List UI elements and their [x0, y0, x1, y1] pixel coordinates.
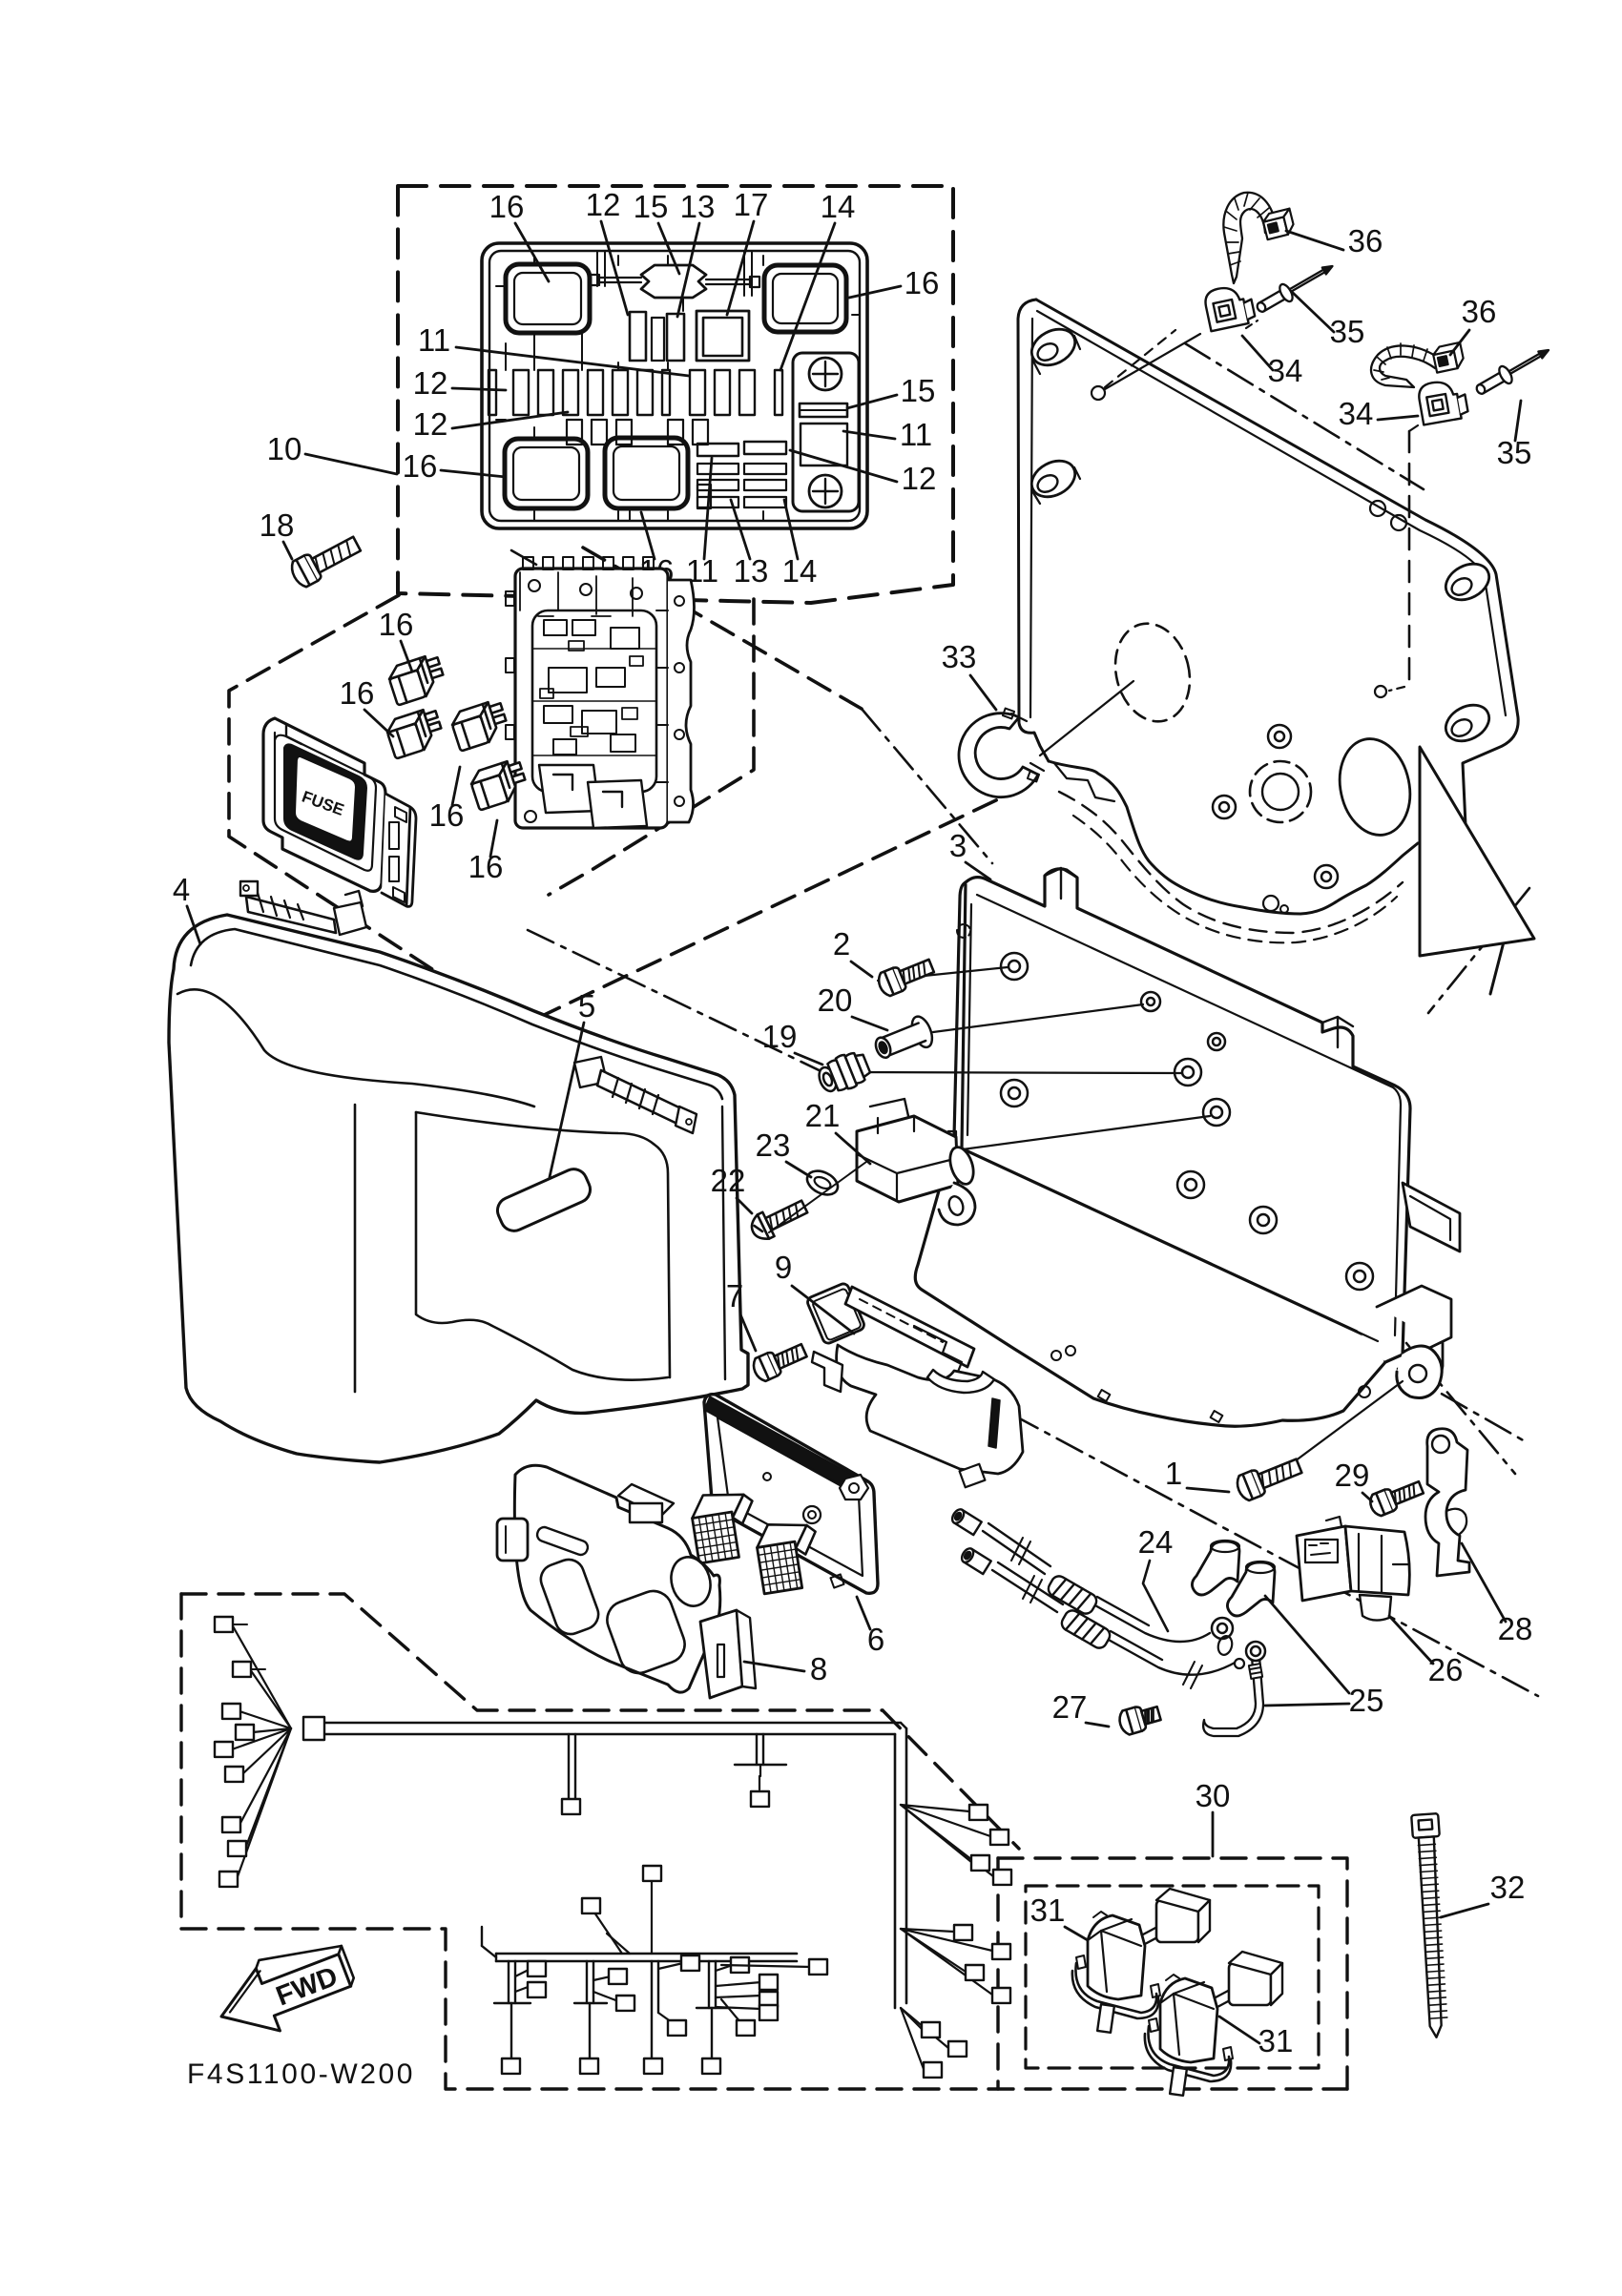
svg-text:1: 1 [1165, 1456, 1182, 1491]
svg-text:30: 30 [1196, 1778, 1231, 1813]
svg-text:12: 12 [413, 365, 448, 401]
svg-text:11: 11 [418, 322, 450, 358]
svg-text:15: 15 [901, 373, 936, 408]
svg-text:25: 25 [1349, 1683, 1384, 1718]
svg-text:16: 16 [429, 797, 465, 833]
svg-text:10: 10 [267, 431, 302, 466]
svg-text:16: 16 [340, 675, 375, 711]
svg-text:18: 18 [260, 507, 295, 543]
svg-text:12: 12 [586, 187, 621, 222]
svg-text:3: 3 [949, 828, 967, 863]
svg-text:36: 36 [1462, 294, 1497, 329]
svg-text:12: 12 [902, 461, 937, 496]
svg-text:20: 20 [818, 983, 853, 1018]
svg-text:26: 26 [1428, 1652, 1464, 1687]
svg-text:12: 12 [413, 406, 448, 442]
svg-text:15: 15 [634, 189, 669, 224]
svg-text:16: 16 [905, 265, 940, 300]
svg-text:23: 23 [756, 1127, 791, 1163]
svg-text:29: 29 [1335, 1458, 1370, 1493]
svg-text:14: 14 [821, 189, 856, 224]
svg-text:22: 22 [711, 1163, 746, 1198]
svg-text:16: 16 [468, 849, 504, 884]
svg-text:16: 16 [379, 607, 414, 642]
svg-text:34: 34 [1339, 396, 1374, 431]
svg-text:14: 14 [782, 553, 818, 589]
svg-text:32: 32 [1490, 1870, 1526, 1905]
svg-text:19: 19 [762, 1019, 798, 1054]
svg-text:7: 7 [726, 1278, 743, 1313]
svg-text:31: 31 [1258, 2023, 1294, 2058]
svg-text:36: 36 [1348, 223, 1383, 259]
svg-text:11: 11 [900, 417, 932, 452]
svg-text:9: 9 [775, 1250, 792, 1285]
svg-text:16: 16 [403, 448, 438, 484]
svg-text:13: 13 [680, 189, 716, 224]
svg-text:F4S1100-W200: F4S1100-W200 [187, 2058, 415, 2090]
svg-text:8: 8 [810, 1651, 827, 1686]
svg-text:5: 5 [578, 988, 595, 1024]
svg-text:33: 33 [942, 639, 977, 674]
svg-text:31: 31 [1030, 1893, 1066, 1928]
svg-text:24: 24 [1138, 1524, 1174, 1560]
svg-text:16: 16 [489, 189, 525, 224]
svg-text:21: 21 [805, 1098, 841, 1133]
svg-text:27: 27 [1052, 1689, 1088, 1725]
svg-text:2: 2 [833, 926, 850, 962]
svg-text:17: 17 [734, 187, 769, 222]
svg-text:4: 4 [173, 872, 190, 907]
